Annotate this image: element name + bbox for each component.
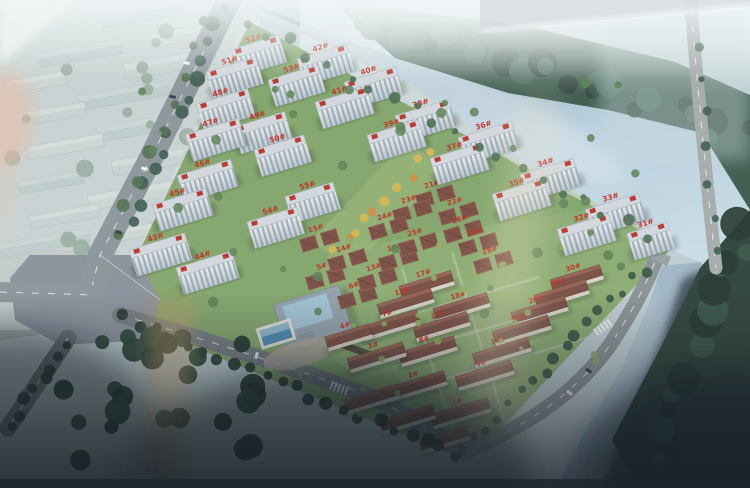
aerial-rendering: 30#17#29#12#18#20#7#11#19#4#8#10#3#9#2#1…: [0, 0, 750, 488]
masterplan-photo: 30#17#29#12#18#20#7#11#19#4#8#10#3#9#2#1…: [0, 0, 750, 488]
photo-artifacts: [0, 0, 750, 488]
